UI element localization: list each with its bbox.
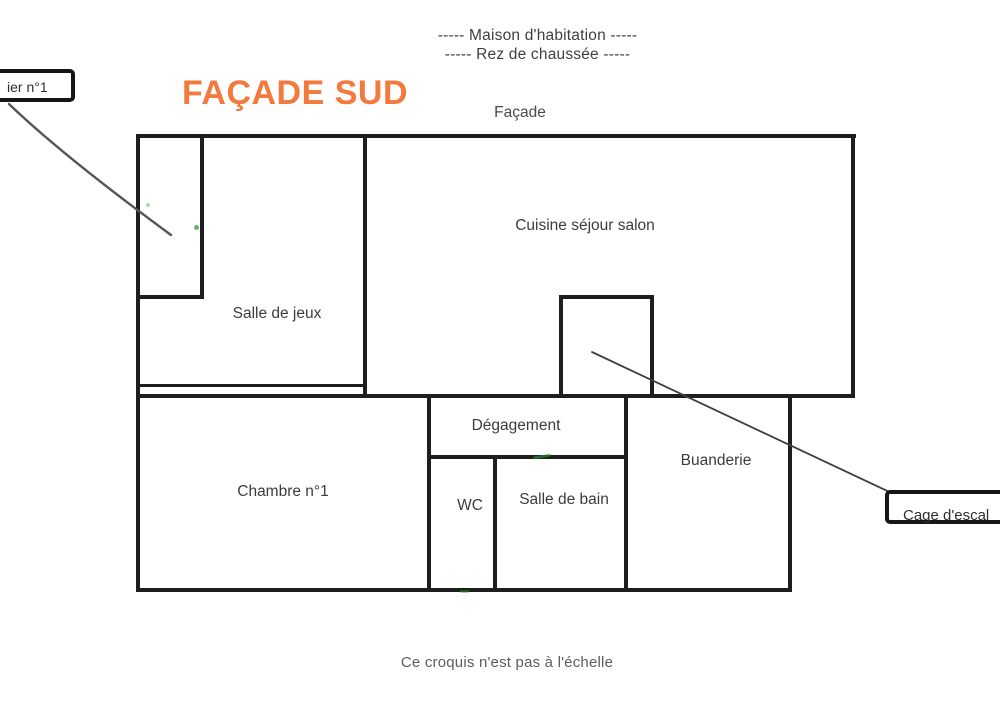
facade-label: Façade <box>460 104 580 122</box>
callout-cage-escalier-label: Cage d'escal <box>903 507 989 524</box>
room-label-salle-de-jeux: Salle de jeux <box>233 305 322 323</box>
wall-chambre-right <box>427 394 431 592</box>
green-mark-dot-faint <box>146 203 150 207</box>
callout-escalier-label: ier n°1 <box>7 79 48 95</box>
wall-divider-main <box>136 394 855 398</box>
room-label-chambre-1: Chambre n°1 <box>237 483 329 501</box>
room-label-buanderie: Buanderie <box>681 452 752 470</box>
wall-salle-de-jeux-right <box>363 134 367 398</box>
leader-line-escalier <box>9 104 171 235</box>
wall-outer-right-lower <box>788 394 792 592</box>
drawing-header: ----- Maison d'habitation ----- ----- Re… <box>400 26 675 64</box>
floor-plan-sketch: ----- Maison d'habitation ----- ----- Re… <box>0 0 1000 709</box>
wall-outer-right-upper <box>851 134 855 398</box>
wall-outer-left <box>136 134 140 592</box>
wall-wc-divider <box>493 455 497 592</box>
wall-outer-top <box>136 134 856 138</box>
wall-degagement-bottom <box>427 455 628 459</box>
room-label-degagement: Dégagement <box>472 417 561 435</box>
room-label-salle-de-bain: Salle de bain <box>519 491 609 509</box>
wall-stair-nook-horizontal <box>136 295 204 299</box>
facade-sud-title: FAÇADE SUD <box>182 74 408 113</box>
callout-escalier: ier n°1 <box>0 69 75 102</box>
header-line-1: ----- Maison d'habitation ----- <box>400 26 675 45</box>
green-mark-dot <box>194 225 199 230</box>
room-label-wc: WC <box>457 497 483 515</box>
room-label-cuisine-sejour-salon: Cuisine séjour salon <box>515 217 655 235</box>
callout-cage-escalier: Cage d'escal <box>885 490 1000 524</box>
wall-stair-nook-vertical <box>200 134 204 299</box>
stairwell-outline <box>559 295 654 398</box>
green-mark-tick <box>460 590 469 593</box>
header-line-2: ----- Rez de chaussée ----- <box>400 45 675 64</box>
wall-buanderie-left <box>624 394 628 592</box>
scale-disclaimer: Ce croquis n'est pas à l'échelle <box>307 654 707 671</box>
wall-salle-de-jeux-bottom <box>136 384 367 387</box>
